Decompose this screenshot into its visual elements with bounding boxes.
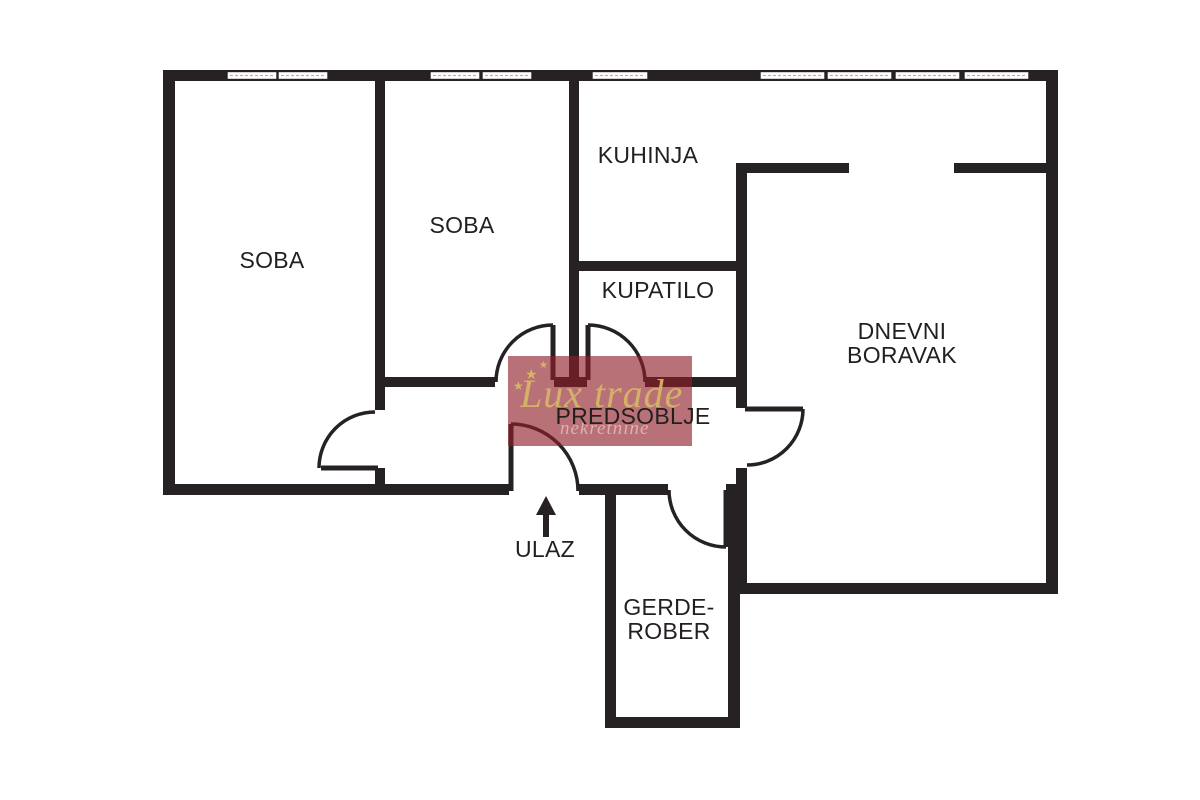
room-label-soba-2: SOBA: [429, 213, 494, 237]
wall-outer-left: [163, 70, 175, 495]
window: [227, 72, 277, 80]
wall-bottom-left-segment: [163, 484, 509, 495]
room-label-kuhinja: KUHINJA: [598, 143, 699, 167]
window: [827, 72, 892, 80]
window: [592, 72, 648, 80]
door-gerderober: [669, 490, 726, 547]
entrance-label: ULAZ: [515, 537, 575, 561]
wall-outer-right: [1046, 70, 1058, 594]
room-label-predsoblje: PREDSOBLJE: [555, 404, 710, 428]
room-label-kupatilo: KUPATILO: [602, 278, 715, 302]
room-label-gerderober-line2: ROBER: [623, 619, 714, 643]
wall-dnevni-left-upper: [736, 163, 747, 408]
window: [278, 72, 328, 80]
wall-kuhinja-dnevni-left: [736, 163, 849, 173]
window: [760, 72, 825, 80]
window: [430, 72, 480, 80]
door-soba1: [319, 412, 378, 468]
watermark-box: ★ ★ ★ Lux trade nekretnine: [508, 356, 692, 446]
wall-hall-top-a: [385, 377, 495, 387]
wall-kuhinja-kupatilo: [579, 261, 737, 271]
wall-gerderober-right: [728, 484, 740, 728]
window: [895, 72, 960, 80]
door-dnevni: [745, 409, 803, 465]
entrance-arrow-icon: [536, 496, 556, 537]
wall-gerderober-left: [605, 484, 616, 728]
wall-bottom-mid-segment: [579, 484, 668, 495]
wall-soba1-below-door: [375, 468, 385, 495]
room-label-dnevni-boravak: DNEVNI BORAVAK: [847, 319, 957, 367]
window: [964, 72, 1029, 80]
floorplan-canvas: SOBA SOBA KUHINJA KUPATILO DNEVNI BORAVA…: [0, 0, 1200, 800]
wall-dnevni-bottom: [736, 583, 1058, 594]
room-label-dnevni-line2: BORAVAK: [847, 343, 957, 367]
wall-kuhinja-dnevni-right: [954, 163, 1046, 173]
wall-gerderober-bottom: [605, 717, 740, 728]
window: [482, 72, 532, 80]
wall-soba1-soba2-divider: [375, 80, 385, 410]
room-label-gerderober-line1: GERDE-: [623, 595, 714, 619]
room-label-dnevni-line1: DNEVNI: [847, 319, 957, 343]
room-label-soba-1: SOBA: [239, 248, 304, 272]
wall-soba2-kupatilo-divider: [569, 80, 579, 387]
room-label-gerderober: GERDE- ROBER: [623, 595, 714, 643]
